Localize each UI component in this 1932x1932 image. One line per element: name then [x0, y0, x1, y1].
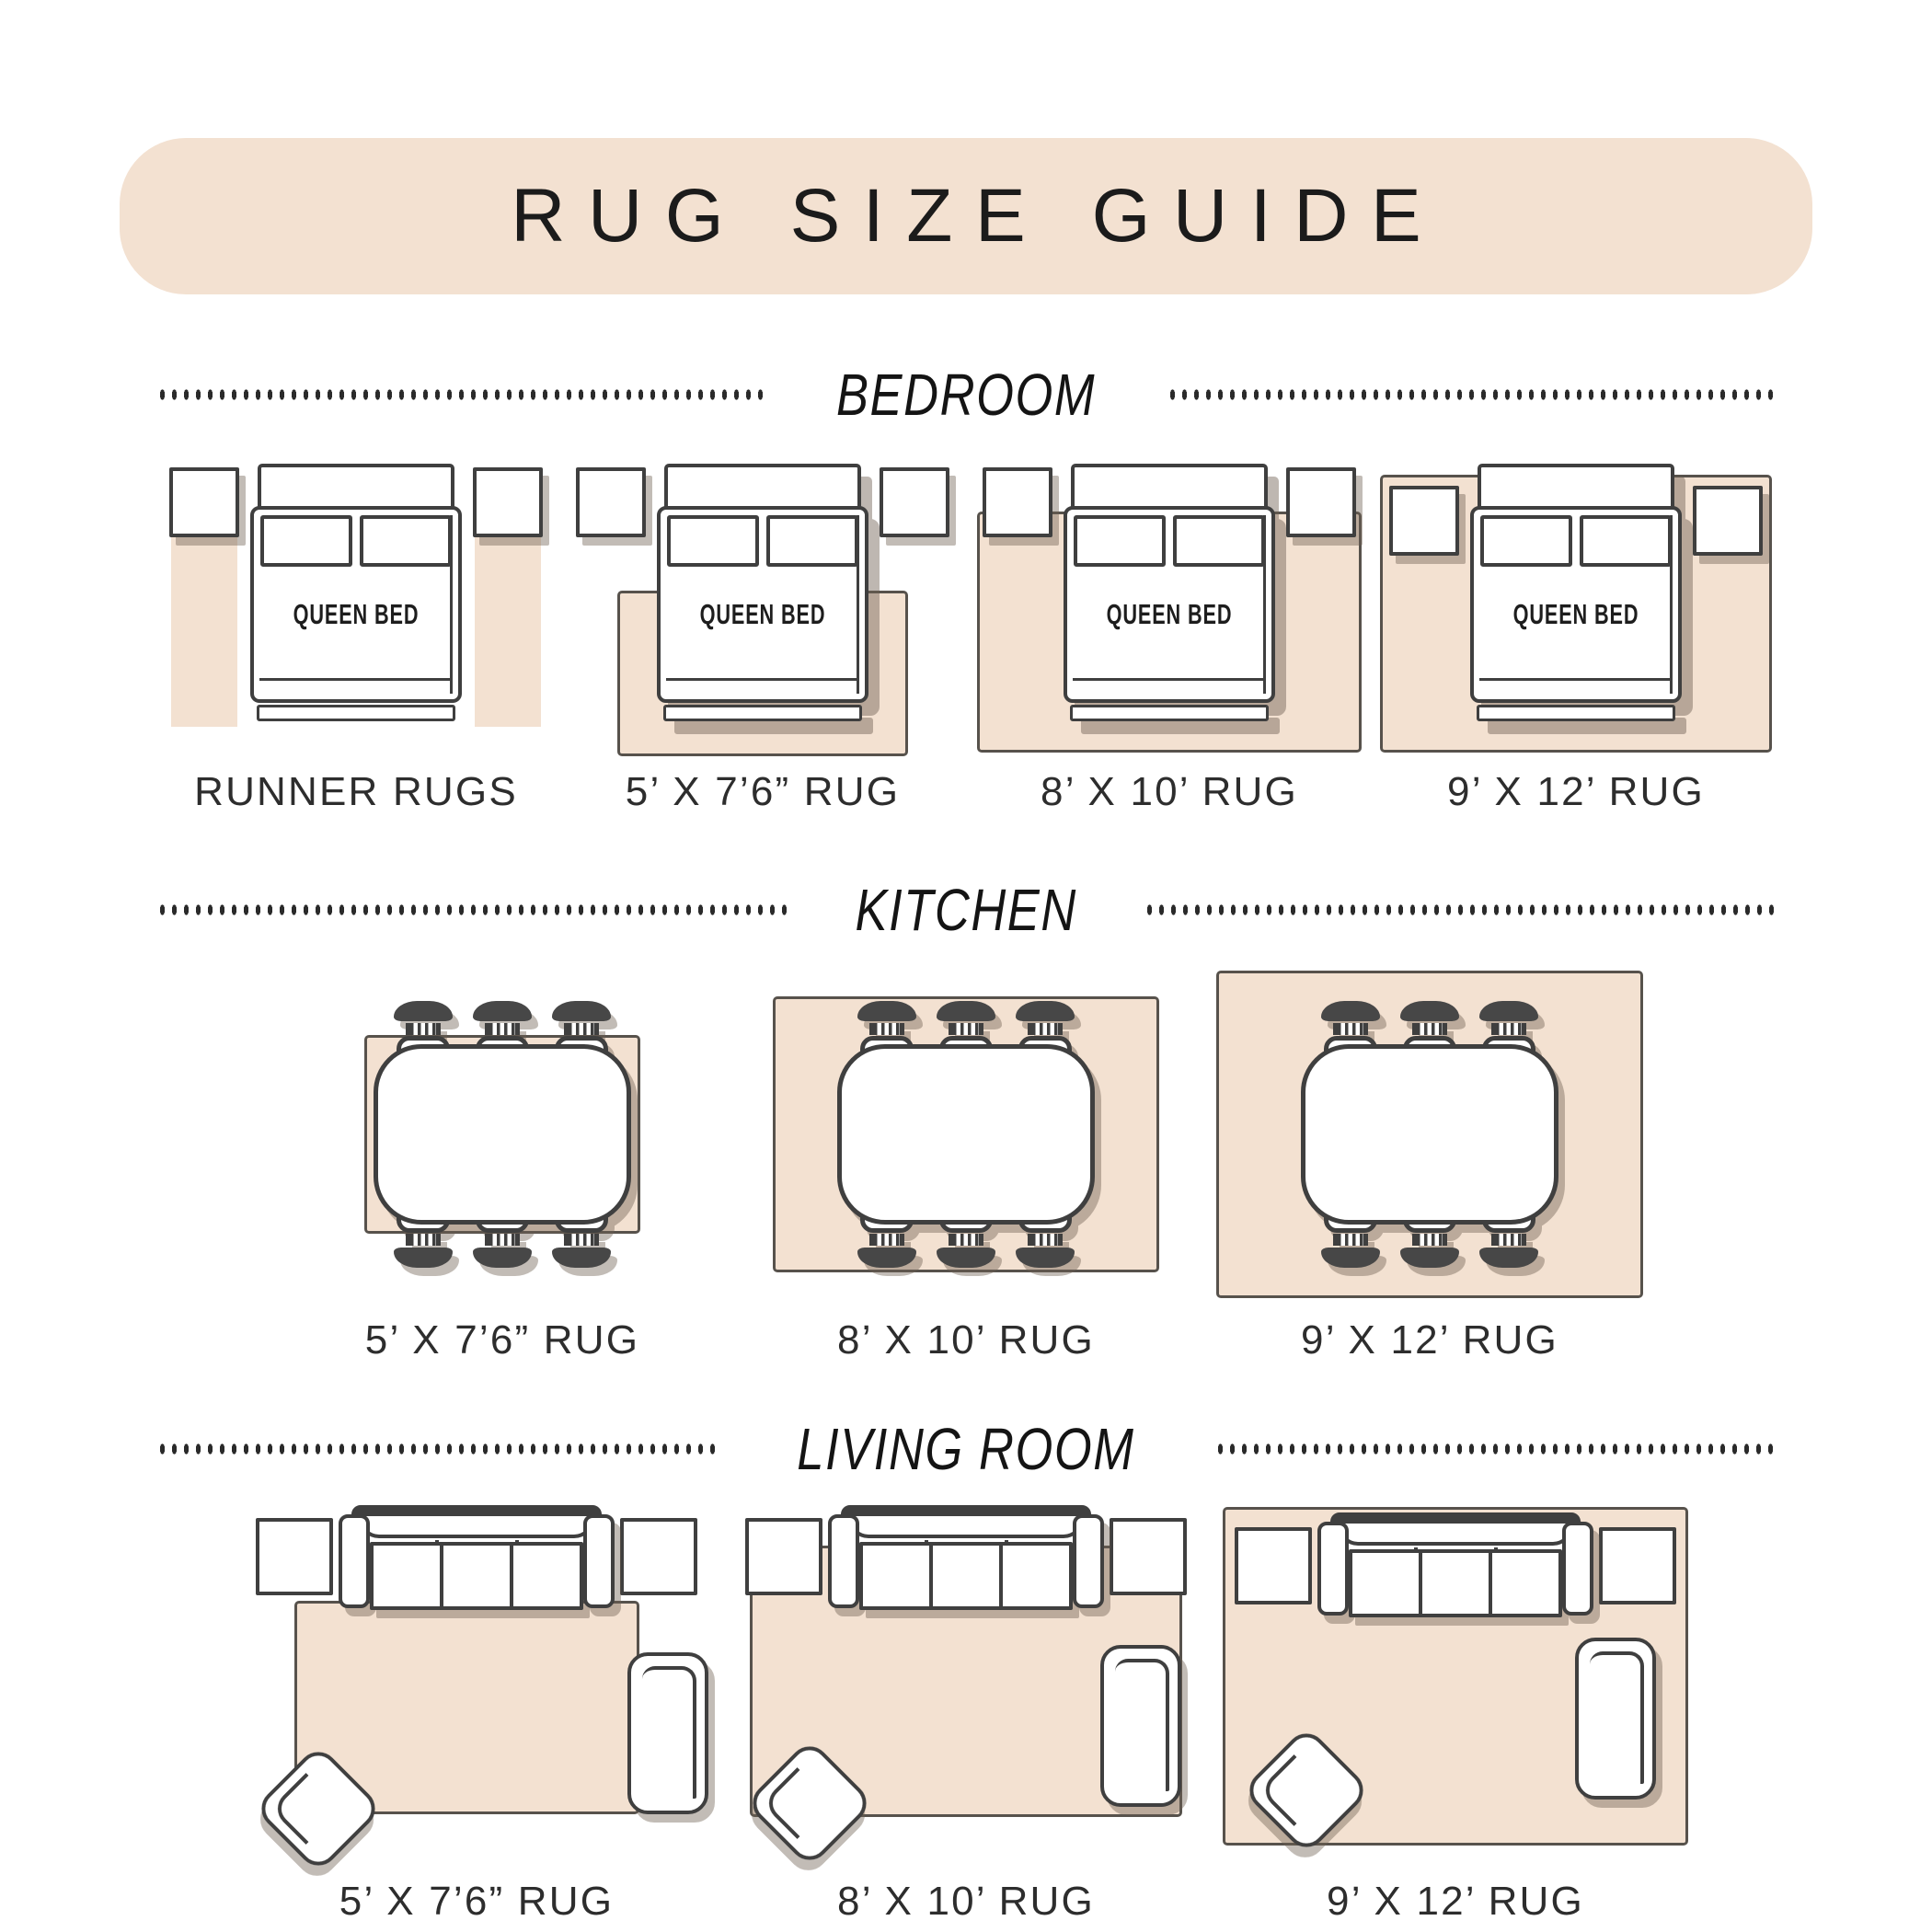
dining-set	[1301, 1001, 1558, 1268]
pillow	[1074, 515, 1166, 567]
footboard	[1477, 705, 1675, 721]
side-table-icon	[1110, 1518, 1187, 1595]
runner-rugs-figure: QUEEN BED	[158, 453, 554, 756]
bedroom-diagram-9x12: QUEEN BED 9’ X 12’ RUG	[1378, 453, 1774, 815]
living-room-row: 5’ X 7’6” RUG	[0, 1498, 1932, 1925]
sofa-cushions	[370, 1542, 583, 1610]
kitchen-diagram-8x10: 8’ X 10’ RUG	[745, 964, 1187, 1363]
footboard	[1070, 705, 1269, 721]
sofa-armrest	[1073, 1514, 1104, 1608]
living-room-diagram-8x10: 8’ X 10’ RUG	[727, 1498, 1205, 1925]
kitchen-diagram-5x76: 5’ X 7’6” RUG	[282, 964, 723, 1363]
side-table-icon	[620, 1518, 697, 1595]
nightstand-icon	[473, 467, 543, 537]
rug-size-guide-infographic: RUG SIZE GUIDE BEDROOM QUEEN BED	[0, 0, 1932, 1932]
bed-label: QUEEN BED	[691, 598, 834, 631]
dotted-divider	[156, 1442, 718, 1456]
nightstand-icon	[576, 467, 646, 537]
nightstand-icon	[880, 467, 949, 537]
armchair-icon	[1100, 1645, 1181, 1807]
sofa-armrest	[828, 1514, 859, 1608]
section-title-kitchen: KITCHEN	[855, 876, 1076, 944]
sofa-armrest	[1317, 1522, 1349, 1616]
bedroom-9x12-figure: QUEEN BED	[1378, 453, 1774, 756]
dotted-divider	[1214, 1442, 1776, 1456]
bed-label: QUEEN BED	[1504, 598, 1647, 631]
living-room-diagram-9x12: 9’ X 12’ RUG	[1216, 1498, 1695, 1925]
section-header-living-room: LIVING ROOM	[156, 1415, 1776, 1483]
sofa-icon	[828, 1505, 1104, 1614]
rug-size-label: 9’ X 12’ RUG	[1327, 1879, 1584, 1925]
dotted-divider	[156, 903, 788, 917]
mattress: QUEEN BED	[657, 506, 868, 703]
sofa-armrest	[1562, 1522, 1593, 1616]
pillow	[667, 515, 759, 567]
mattress: QUEEN BED	[250, 506, 462, 703]
sofa-cushions	[1349, 1549, 1562, 1617]
section-title-living-room: LIVING ROOM	[797, 1415, 1134, 1483]
sofa-armrest	[339, 1514, 370, 1608]
pillow	[1480, 515, 1572, 567]
rug-size-label: 5’ X 7’6” RUG	[626, 769, 900, 815]
side-table-icon	[256, 1518, 333, 1595]
living-room-9x12-figure	[1216, 1498, 1695, 1866]
mattress: QUEEN BED	[1470, 506, 1682, 703]
queen-bed-icon: QUEEN BED	[1064, 464, 1275, 721]
title-banner: RUG SIZE GUIDE	[120, 138, 1812, 294]
sofa-armrest	[583, 1514, 615, 1608]
pillow	[766, 515, 858, 567]
rug-size-label: 5’ X 7’6” RUG	[365, 1317, 639, 1363]
pillow	[260, 515, 352, 567]
bed-label: QUEEN BED	[284, 598, 427, 631]
rug-size-label: RUNNER RUGS	[194, 769, 518, 815]
bedroom-diagram-5x76: QUEEN BED 5’ X 7’6” RUG	[565, 453, 960, 815]
sofa-cushions	[859, 1542, 1073, 1610]
runner-rug	[171, 537, 237, 727]
section-header-bedroom: BEDROOM	[156, 361, 1776, 429]
kitchen-row: 5’ X 7’6” RUG 8’ X 10’ RUG	[0, 964, 1932, 1363]
dotted-divider	[1167, 387, 1776, 402]
nightstand-icon	[983, 467, 1052, 537]
kitchen-9x12-figure	[1209, 964, 1650, 1305]
nightstand-icon	[1286, 467, 1356, 537]
bedroom-8x10-figure: QUEEN BED	[972, 453, 1367, 756]
rug-size-label: 5’ X 7’6” RUG	[339, 1879, 614, 1925]
dining-table-icon	[374, 1044, 631, 1225]
bedroom-5x76-figure: QUEEN BED	[565, 453, 960, 756]
bedroom-diagram-runner-rugs: QUEEN BED RUNNER RUGS	[158, 453, 554, 815]
kitchen-5x76-figure	[282, 964, 723, 1305]
kitchen-diagram-9x12: 9’ X 12’ RUG	[1209, 964, 1650, 1363]
footboard	[257, 705, 455, 721]
rug-size-label: 9’ X 12’ RUG	[1301, 1317, 1558, 1363]
rug-size-label: 8’ X 10’ RUG	[1041, 769, 1298, 815]
side-table-icon	[1235, 1527, 1312, 1604]
rug-size-label: 8’ X 10’ RUG	[837, 1317, 1095, 1363]
queen-bed-icon: QUEEN BED	[1470, 464, 1682, 721]
armchair-icon	[1575, 1638, 1656, 1800]
dining-set	[374, 1001, 631, 1268]
dining-set	[837, 1001, 1095, 1268]
kitchen-8x10-figure	[745, 964, 1187, 1305]
sofa-icon	[1317, 1512, 1593, 1621]
nightstand-icon	[1693, 486, 1763, 556]
footboard	[663, 705, 862, 721]
dining-table-icon	[1301, 1044, 1558, 1225]
runner-rug	[475, 537, 541, 727]
rug-size-label: 8’ X 10’ RUG	[837, 1879, 1095, 1925]
side-table-icon	[1599, 1527, 1676, 1604]
side-table-icon	[745, 1518, 822, 1595]
queen-bed-icon: QUEEN BED	[657, 464, 868, 721]
mattress: QUEEN BED	[1064, 506, 1275, 703]
dining-table-icon	[837, 1044, 1095, 1225]
page-title: RUG SIZE GUIDE	[489, 173, 1444, 259]
dotted-divider	[1144, 903, 1776, 917]
nightstand-icon	[1389, 486, 1459, 556]
living-room-diagram-5x76: 5’ X 7’6” RUG	[237, 1498, 716, 1925]
sofa-icon	[339, 1505, 615, 1614]
queen-bed-icon: QUEEN BED	[250, 464, 462, 721]
rug-size-label: 9’ X 12’ RUG	[1447, 769, 1705, 815]
section-header-kitchen: KITCHEN	[156, 876, 1776, 944]
bedroom-diagram-8x10: QUEEN BED 8’ X 10’ RUG	[972, 453, 1367, 815]
dotted-divider	[156, 387, 765, 402]
nightstand-icon	[169, 467, 239, 537]
living-room-5x76-figure	[237, 1498, 716, 1866]
living-room-8x10-figure	[727, 1498, 1205, 1866]
pillow	[1580, 515, 1672, 567]
section-title-bedroom: BEDROOM	[836, 361, 1096, 429]
armchair-icon	[627, 1652, 708, 1814]
pillow	[1173, 515, 1265, 567]
bed-label: QUEEN BED	[1098, 598, 1240, 631]
pillow	[360, 515, 452, 567]
bedroom-row: QUEEN BED RUNNER RUGS QUEEN BED	[0, 453, 1932, 815]
